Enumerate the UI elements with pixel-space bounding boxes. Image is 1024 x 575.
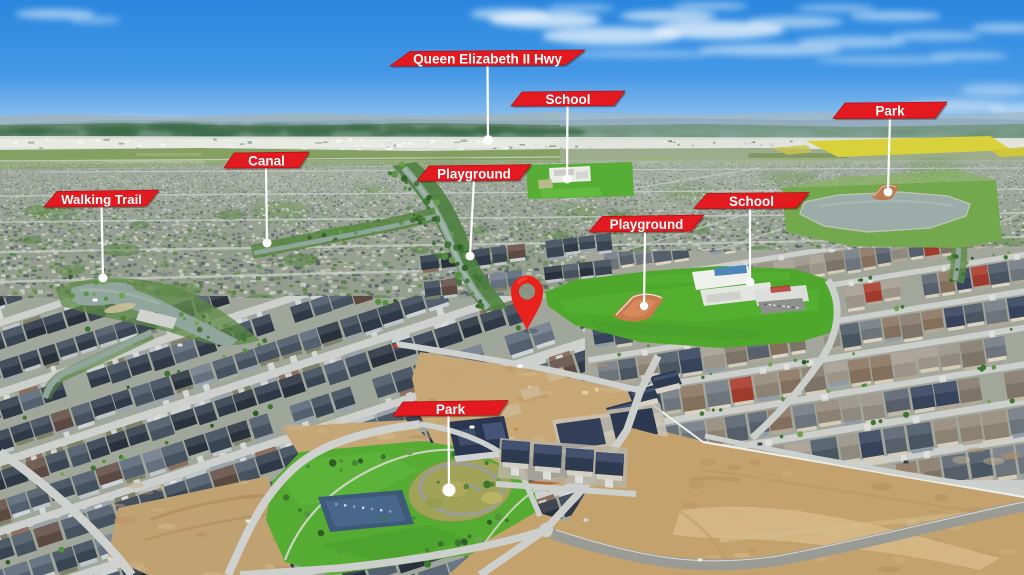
svg-text:School: School [545, 92, 590, 107]
svg-text:Park: Park [436, 402, 466, 417]
svg-text:Walking Trail: Walking Trail [61, 192, 142, 207]
svg-text:School: School [729, 194, 774, 209]
svg-text:Queen Elizabeth II Hwy: Queen Elizabeth II Hwy [413, 52, 562, 67]
svg-text:Playground: Playground [437, 166, 511, 181]
svg-text:Park: Park [875, 104, 905, 119]
svg-text:Playground: Playground [610, 217, 684, 232]
svg-text:Canal: Canal [248, 153, 285, 168]
